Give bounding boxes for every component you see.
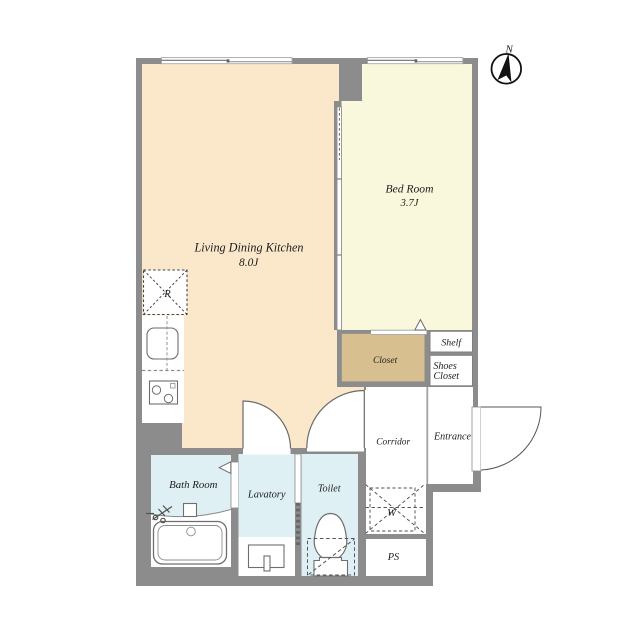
svg-text:Toilet: Toilet (318, 483, 341, 494)
svg-text:Closet: Closet (434, 371, 460, 382)
svg-text:3.7J: 3.7J (400, 198, 420, 209)
svg-text:PS: PS (387, 552, 399, 563)
svg-text:W: W (387, 507, 397, 519)
svg-text:Bath Room: Bath Room (169, 479, 217, 491)
svg-text:Bed Room: Bed Room (386, 182, 434, 195)
svg-text:Closet: Closet (373, 356, 398, 366)
svg-text:N: N (505, 44, 514, 56)
svg-text:Shelf: Shelf (441, 337, 462, 348)
svg-text:Living Dining Kitchen: Living Dining Kitchen (193, 241, 303, 255)
svg-text:Corridor: Corridor (376, 437, 410, 447)
svg-text:Lavatory: Lavatory (247, 490, 286, 501)
svg-text:R: R (163, 289, 171, 300)
svg-text:8.0J: 8.0J (239, 257, 259, 269)
svg-text:Entrance: Entrance (433, 431, 472, 442)
